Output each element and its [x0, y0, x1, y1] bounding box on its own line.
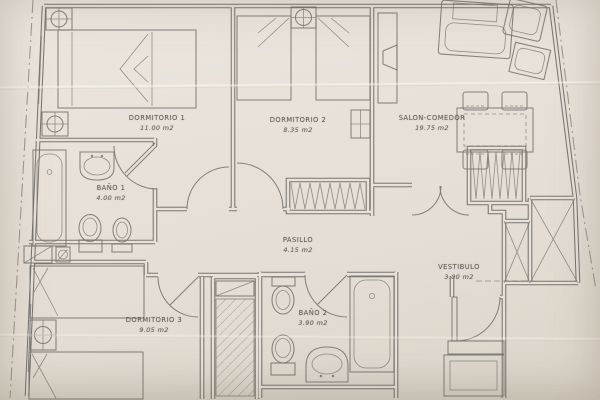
room-label-dormitorio-2: DORMITORIO 2 8.35 m2 [238, 116, 358, 135]
room-label-salon-comedor: SALON-COMEDOR 19.75 m2 [372, 114, 492, 133]
room-name: BAÑO 1 [51, 184, 171, 194]
single-bed-icon [237, 16, 291, 100]
room-label-dormitorio-1: DORMITORIO 1 11.00 m2 [97, 114, 217, 133]
room-name: SALON-COMEDOR [372, 114, 492, 124]
bidet-icon [272, 277, 295, 286]
chair-icon [463, 92, 488, 110]
room-name: BAÑO 2 [253, 309, 373, 319]
room-label-dormitorio-3: DORMITORIO 3 9.05 m2 [94, 316, 214, 335]
toilet-icon [79, 215, 101, 242]
room-name: DORMITORIO 2 [238, 116, 358, 126]
room-area: 3.90 m2 [253, 319, 373, 329]
room-label-bano-1: BAÑO 1 4.00 m2 [51, 184, 171, 203]
entrance-cabinet-icon [444, 341, 504, 396]
entrance-door-leaf [452, 297, 457, 341]
tv-icon [383, 45, 397, 70]
room-area: 9.05 m2 [94, 326, 214, 336]
single-bed-icon [30, 266, 144, 318]
room-name: DORMITORIO 3 [94, 316, 214, 326]
salon-comedor-furniture [378, 0, 551, 169]
room-area: 4.15 m2 [238, 246, 358, 256]
washbasin-icon [80, 152, 114, 180]
room-name: PASILLO [238, 236, 358, 246]
room-name: DORMITORIO 1 [97, 114, 217, 124]
room-area: 11.00 m2 [97, 124, 217, 134]
floor-plan-photo: DORMITORIO 1 11.00 m2 DORMITORIO 2 8.35 … [0, 0, 600, 400]
sofa-icon [438, 0, 514, 59]
side-table-icon [509, 42, 551, 79]
single-bed-icon [316, 16, 370, 100]
room-area: 19.75 m2 [372, 124, 492, 134]
room-area: 3.00 m2 [399, 273, 519, 283]
room-label-bano-2: BAÑO 2 3.90 m2 [253, 309, 373, 328]
room-label-pasillo: PASILLO 4.15 m2 [238, 236, 358, 255]
closet-icon [216, 281, 254, 396]
single-bed-icon [29, 352, 143, 399]
room-area: 4.00 m2 [51, 194, 171, 204]
room-name: VESTIBULO [399, 263, 519, 273]
double-bed-icon [58, 30, 196, 108]
tv-unit-icon [378, 13, 397, 103]
room-area: 8.35 m2 [238, 126, 358, 136]
chair-icon [502, 92, 527, 110]
bano-2-fixtures [271, 276, 394, 382]
room-label-vestibulo: VESTIBULO 3.00 m2 [399, 263, 519, 282]
